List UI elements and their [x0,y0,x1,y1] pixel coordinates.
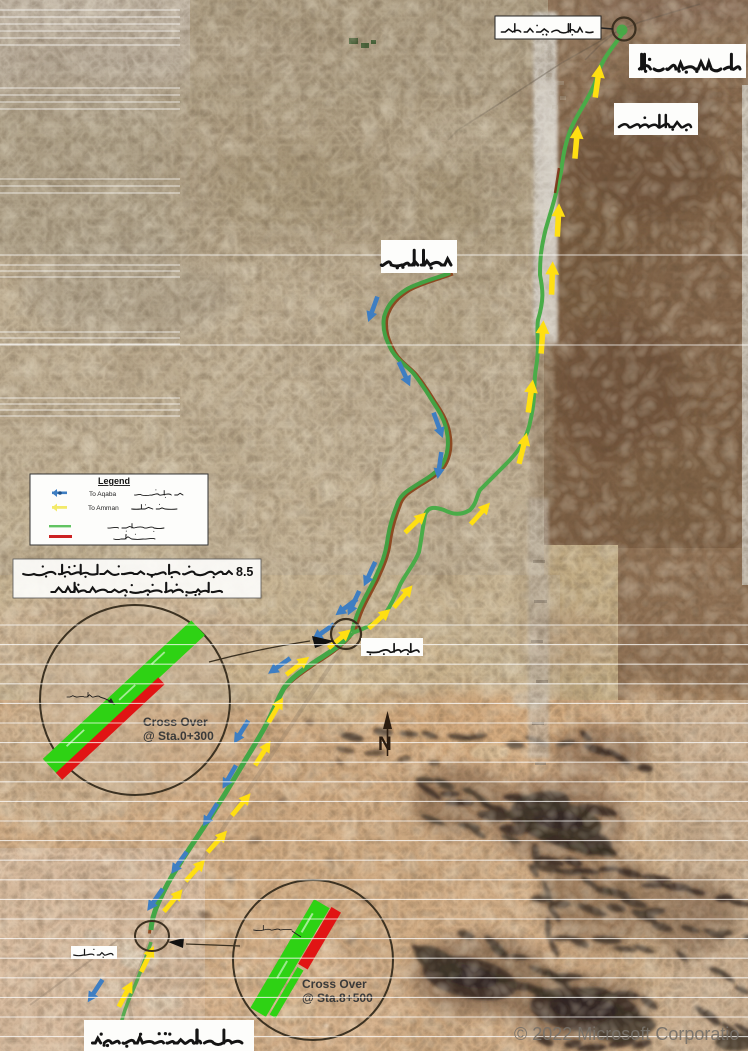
svg-text:To Amman: To Amman [88,505,119,512]
svg-text:@ Sta.0+300: @ Sta.0+300 [143,729,214,743]
svg-text:Cross Over: Cross Over [143,715,208,729]
svg-text:Cross Over: Cross Over [302,977,367,991]
svg-text:To Aqaba: To Aqaba [89,491,116,498]
svg-text:N: N [378,734,392,755]
svg-text:8.5: 8.5 [236,565,253,579]
svg-text:© 2022 Microsoft Corporatio: © 2022 Microsoft Corporatio [514,1024,739,1044]
svg-text:@ Sta.8+500: @ Sta.8+500 [302,991,373,1005]
svg-text:Legend: Legend [98,476,130,486]
